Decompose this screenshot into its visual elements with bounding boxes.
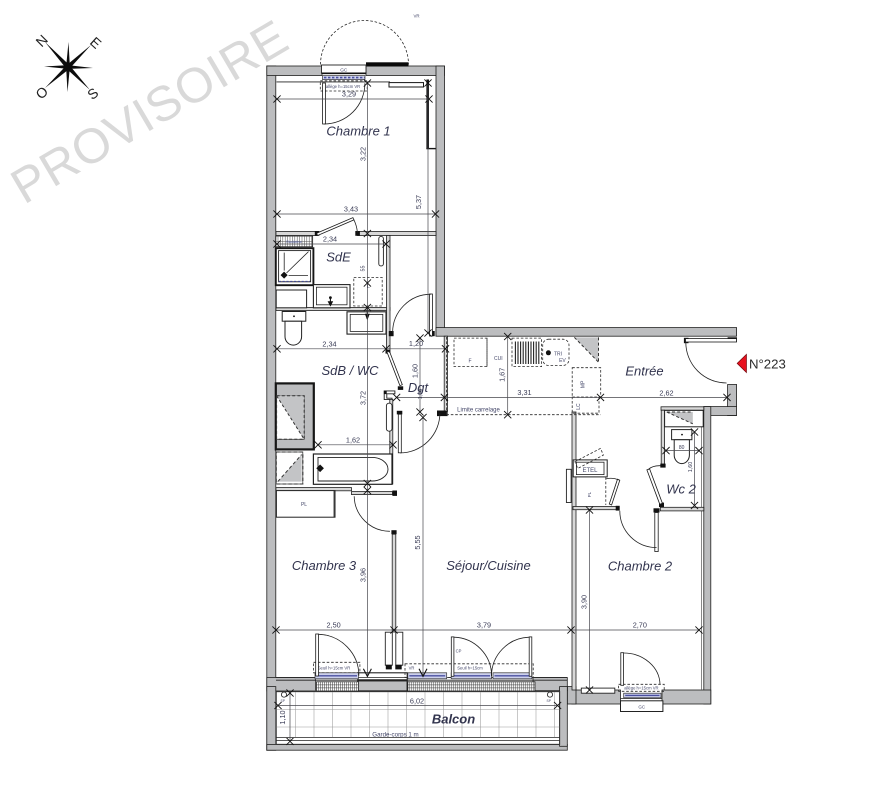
svg-text:Balcon: Balcon: [432, 712, 475, 727]
svg-text:Limite carrelage: Limite carrelage: [457, 407, 500, 413]
svg-text:SdB / WC: SdB / WC: [321, 363, 379, 378]
svg-text:5,55: 5,55: [413, 535, 422, 549]
svg-text:MP: MP: [580, 380, 586, 388]
svg-text:Seuil h=15cm: Seuil h=15cm: [457, 666, 483, 671]
svg-text:allège h=15cm VR: allège h=15cm VR: [326, 84, 360, 89]
svg-text:Radiateur: Radiateur: [286, 240, 302, 244]
svg-text:allège h=15cm VR: allège h=15cm VR: [624, 686, 658, 691]
svg-text:Chambre 1: Chambre 1: [326, 124, 390, 139]
svg-text:1,60: 1,60: [410, 364, 419, 378]
svg-text:CUI: CUI: [494, 356, 503, 362]
svg-text:VR: VR: [409, 666, 415, 671]
svg-text:1,60: 1,60: [688, 462, 694, 473]
svg-text:3,90: 3,90: [580, 595, 589, 609]
svg-text:1,20: 1,20: [409, 339, 423, 348]
svg-text:1,62: 1,62: [346, 435, 360, 444]
svg-text:2,34: 2,34: [323, 235, 337, 244]
svg-text:Garde-corps 1 m: Garde-corps 1 m: [372, 731, 418, 738]
svg-text:N°223: N°223: [749, 356, 786, 371]
svg-text:Seuil h=15cm VR: Seuil h=15cm VR: [318, 666, 350, 671]
svg-text:2,62: 2,62: [659, 389, 673, 398]
svg-text:PL: PL: [587, 491, 592, 497]
svg-text:Chambre 3: Chambre 3: [292, 558, 357, 573]
svg-text:Chambre 2: Chambre 2: [608, 559, 673, 574]
svg-text:TRI: TRI: [554, 351, 562, 357]
svg-text:GC: GC: [340, 68, 348, 74]
svg-text:Wc 2: Wc 2: [666, 482, 696, 497]
svg-text:SP: SP: [547, 699, 552, 703]
svg-text:1,67: 1,67: [497, 368, 506, 382]
svg-text:2,50: 2,50: [326, 621, 340, 630]
svg-text:2,70: 2,70: [633, 621, 647, 630]
svg-text:3,22: 3,22: [358, 147, 367, 161]
svg-text:ETEL: ETEL: [582, 468, 598, 474]
svg-text:6,02: 6,02: [410, 697, 424, 706]
svg-text:1,10: 1,10: [278, 710, 287, 724]
svg-text:55: 55: [360, 266, 366, 272]
svg-text:5,37: 5,37: [414, 195, 423, 209]
svg-text:3,79: 3,79: [477, 621, 491, 630]
svg-text:3,72: 3,72: [358, 391, 367, 405]
svg-text:VR: VR: [413, 14, 419, 19]
svg-text:EV: EV: [559, 358, 566, 364]
svg-text:3,31: 3,31: [517, 388, 531, 397]
svg-text:3,43: 3,43: [344, 205, 358, 214]
svg-text:80: 80: [679, 445, 685, 451]
svg-text:Dgt: Dgt: [408, 380, 430, 395]
svg-text:CP: CP: [456, 649, 462, 654]
svg-text:LC: LC: [576, 403, 582, 410]
svg-text:Séjour/Cuisine: Séjour/Cuisine: [446, 558, 531, 573]
svg-text:SdE: SdE: [326, 250, 351, 265]
svg-text:2,34: 2,34: [322, 339, 336, 348]
svg-text:GC: GC: [638, 704, 646, 709]
svg-text:F: F: [468, 358, 471, 364]
svg-text:Entrée: Entrée: [625, 364, 663, 379]
svg-text:PL: PL: [301, 502, 307, 508]
svg-text:3,96: 3,96: [358, 568, 367, 582]
svg-text:3,29: 3,29: [342, 90, 356, 99]
